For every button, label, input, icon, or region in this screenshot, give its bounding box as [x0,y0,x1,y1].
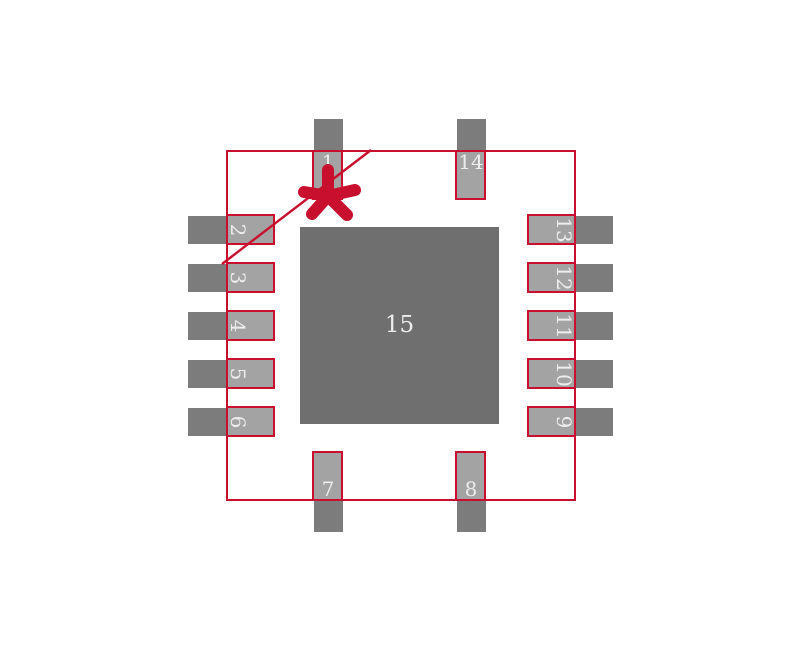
pin-7-copper-stub [314,501,343,532]
pin-1-copper-stub [314,119,343,150]
pin-4-number: 4 [227,304,249,348]
pin-3-copper-stub [188,264,226,292]
pin-6-number: 6 [227,400,249,444]
pin-2-number: 2 [227,208,249,252]
pin-2-copper-stub [188,216,226,244]
pin-9-number: 9 [553,400,575,444]
footprint-canvas: 15 1234567891011121314 [0,0,800,652]
pin-14-number: 14 [449,151,493,173]
pin-5-copper-stub [188,360,226,388]
pin-7-number: 7 [306,478,350,500]
pin-12-number: 12 [553,256,575,300]
pin-14-copper-stub [457,119,486,150]
pin-12-copper-stub [576,264,613,292]
pin-4-copper-stub [188,312,226,340]
pin-5-number: 5 [227,352,249,396]
pin-10-copper-stub [576,360,613,388]
pin-8-number: 8 [449,478,493,500]
pin-9-copper-stub [576,408,613,436]
pin-11-number: 11 [553,304,575,348]
pin-6-copper-stub [188,408,226,436]
pin-13-number: 13 [553,208,575,252]
pin-1-number: 1 [306,151,350,173]
thermal-pad: 15 [300,227,499,424]
pin-13-copper-stub [576,216,613,244]
pin-8-copper-stub [457,501,486,532]
pin-11-copper-stub [576,312,613,340]
pin-10-number: 10 [553,352,575,396]
pin-3-number: 3 [227,256,249,300]
thermal-pad-number: 15 [385,314,414,337]
